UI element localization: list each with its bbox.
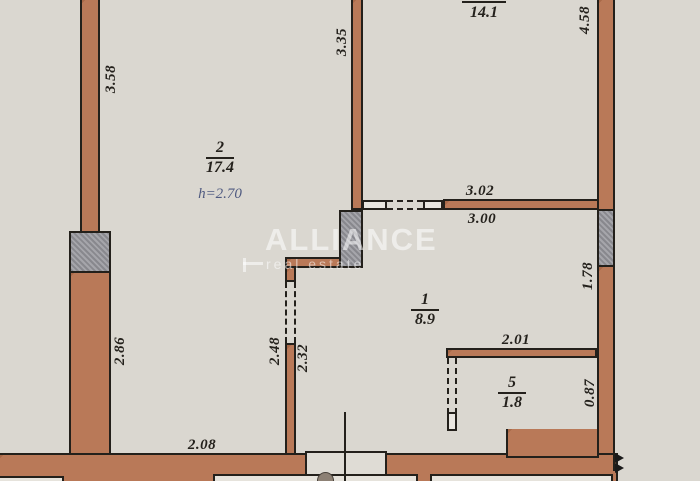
dim-2-86: 2.86 bbox=[111, 329, 129, 373]
room14-label: 14.1 bbox=[452, 1, 516, 22]
wall-right-lower bbox=[597, 265, 615, 458]
dim-4-58: 4.58 bbox=[576, 0, 594, 42]
dim-2-48: 2.48 bbox=[266, 329, 284, 373]
wall-right-upper bbox=[597, 0, 615, 211]
room1-label: 1 8.9 bbox=[395, 291, 455, 329]
room5-label: 5 1.8 bbox=[482, 374, 542, 412]
wall-center-vertical bbox=[351, 0, 363, 210]
shaft-left bbox=[69, 231, 111, 273]
door-top-jamb-right bbox=[423, 200, 443, 210]
dim-3-35: 3.35 bbox=[333, 20, 351, 64]
wall-left-lower bbox=[69, 270, 111, 458]
corner-mark-arrow-bottom bbox=[615, 463, 624, 473]
watermark-brand: ALLIANCE bbox=[265, 222, 438, 258]
room14-area: 14.1 bbox=[462, 1, 506, 21]
watermark-bracket-horizontal bbox=[243, 262, 263, 265]
floor-plan: ALLIANCE real estate 2 17.4 h=2.70 14.1 … bbox=[0, 0, 700, 481]
dim-2-32: 2.32 bbox=[294, 336, 312, 380]
wall-room5-top bbox=[446, 348, 597, 358]
room5-area: 1.8 bbox=[482, 394, 542, 412]
watermark-bracket-vertical bbox=[243, 258, 246, 272]
neighbor-room-center bbox=[213, 474, 418, 481]
room5-number: 5 bbox=[498, 374, 526, 394]
door-top-jamb-left bbox=[362, 200, 387, 210]
door-room5-jamb bbox=[447, 412, 457, 431]
dim-1-78: 1.78 bbox=[579, 254, 597, 298]
wall-room5-bottom bbox=[506, 429, 599, 458]
room1-area: 8.9 bbox=[395, 311, 455, 329]
room2-height-note: h=2.70 bbox=[188, 186, 252, 203]
room2-label: 2 17.4 bbox=[188, 139, 252, 177]
bottom-wall-opening bbox=[305, 451, 387, 475]
neighbor-room-right bbox=[430, 474, 613, 481]
dim-3-00: 3.00 bbox=[452, 210, 512, 228]
dim-3-02: 3.02 bbox=[450, 182, 510, 200]
dim-2-08: 2.08 bbox=[172, 436, 232, 454]
room1-number: 1 bbox=[411, 291, 439, 311]
dim-0-87: 0.87 bbox=[581, 371, 599, 415]
wall-top-horizontal bbox=[443, 199, 599, 210]
watermark-tagline: real estate bbox=[266, 256, 364, 272]
room2-area: 17.4 bbox=[188, 159, 252, 177]
dim-3-58: 3.58 bbox=[102, 57, 120, 101]
dim-2-01: 2.01 bbox=[486, 331, 546, 349]
shaft-right bbox=[597, 209, 615, 267]
door-mid-opening bbox=[285, 282, 296, 343]
neighbor-room-left bbox=[0, 476, 64, 481]
door-top-opening bbox=[387, 200, 423, 210]
wall-left-upper bbox=[80, 0, 100, 234]
corner-mark-arrow-top bbox=[615, 453, 624, 463]
section-line bbox=[344, 412, 346, 481]
door-room5-opening bbox=[447, 358, 457, 414]
room2-number: 2 bbox=[206, 139, 234, 159]
